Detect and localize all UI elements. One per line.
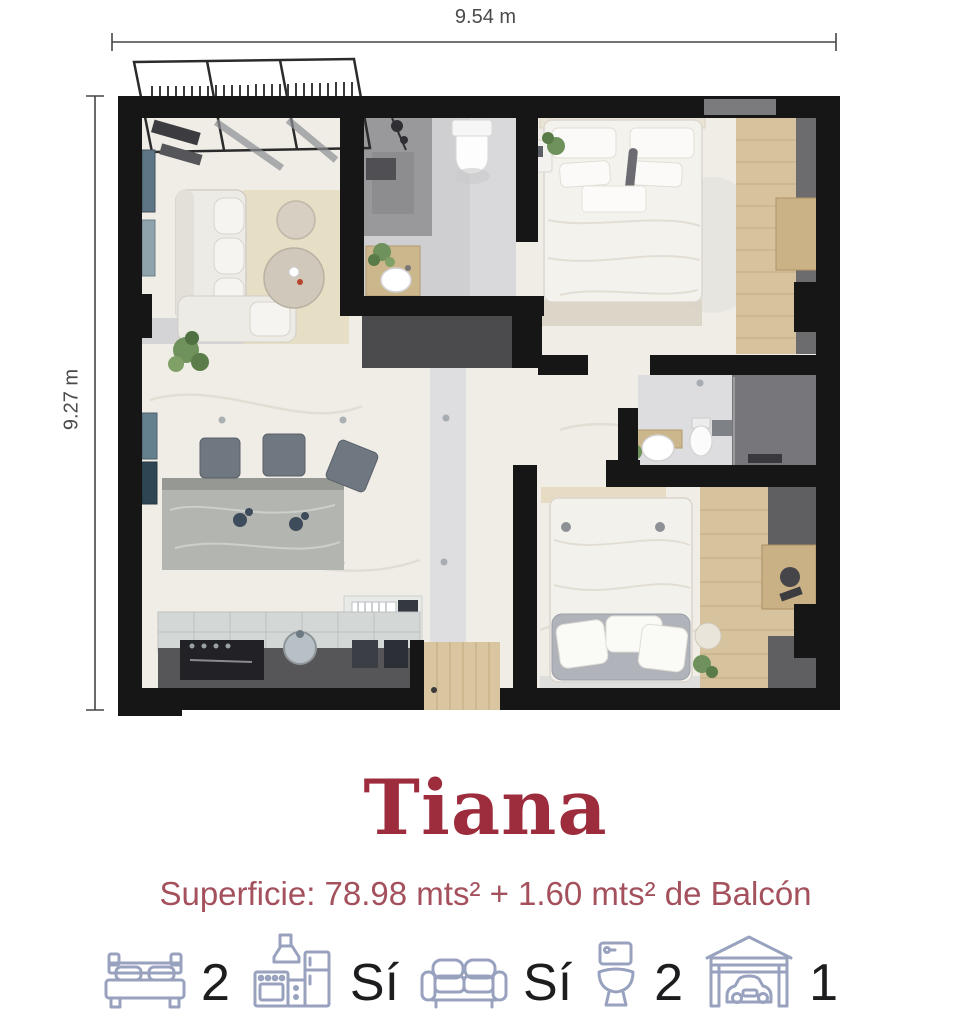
feature-value-kitchen: Sí xyxy=(350,959,399,1008)
feature-parking: 1 xyxy=(703,932,838,1014)
dimension-width-label: 9.54 m xyxy=(0,6,971,29)
feature-value-living: Sí xyxy=(523,959,572,1008)
kitchen-icon xyxy=(250,932,336,1010)
surface-text: Superficie: 78.98 mts² + 1.60 mts² de Ba… xyxy=(0,872,971,916)
feature-value-parking: 1 xyxy=(809,959,838,1008)
feature-value-bathrooms: 2 xyxy=(654,959,683,1008)
feature-kitchen: Sí xyxy=(250,932,399,1014)
garage-icon xyxy=(703,932,795,1010)
dimension-height-label: 9.27 m xyxy=(61,356,84,444)
plan-title: Tiana xyxy=(0,768,971,848)
feature-bedrooms: 2 xyxy=(103,948,230,1014)
floor-plan-page: 9.54 m 9.27 m Tiana Superficie: 78.98 mt… xyxy=(0,0,971,1032)
bed-icon xyxy=(103,948,187,1010)
sofa-icon xyxy=(419,954,509,1010)
room-bedroom-1 xyxy=(522,116,705,302)
feature-value-bedrooms: 2 xyxy=(201,959,230,1008)
toilet-icon xyxy=(592,938,640,1010)
features-row: 2 Sí xyxy=(0,918,971,1014)
feature-living: Sí xyxy=(419,954,572,1014)
feature-bathrooms: 2 xyxy=(592,938,683,1014)
